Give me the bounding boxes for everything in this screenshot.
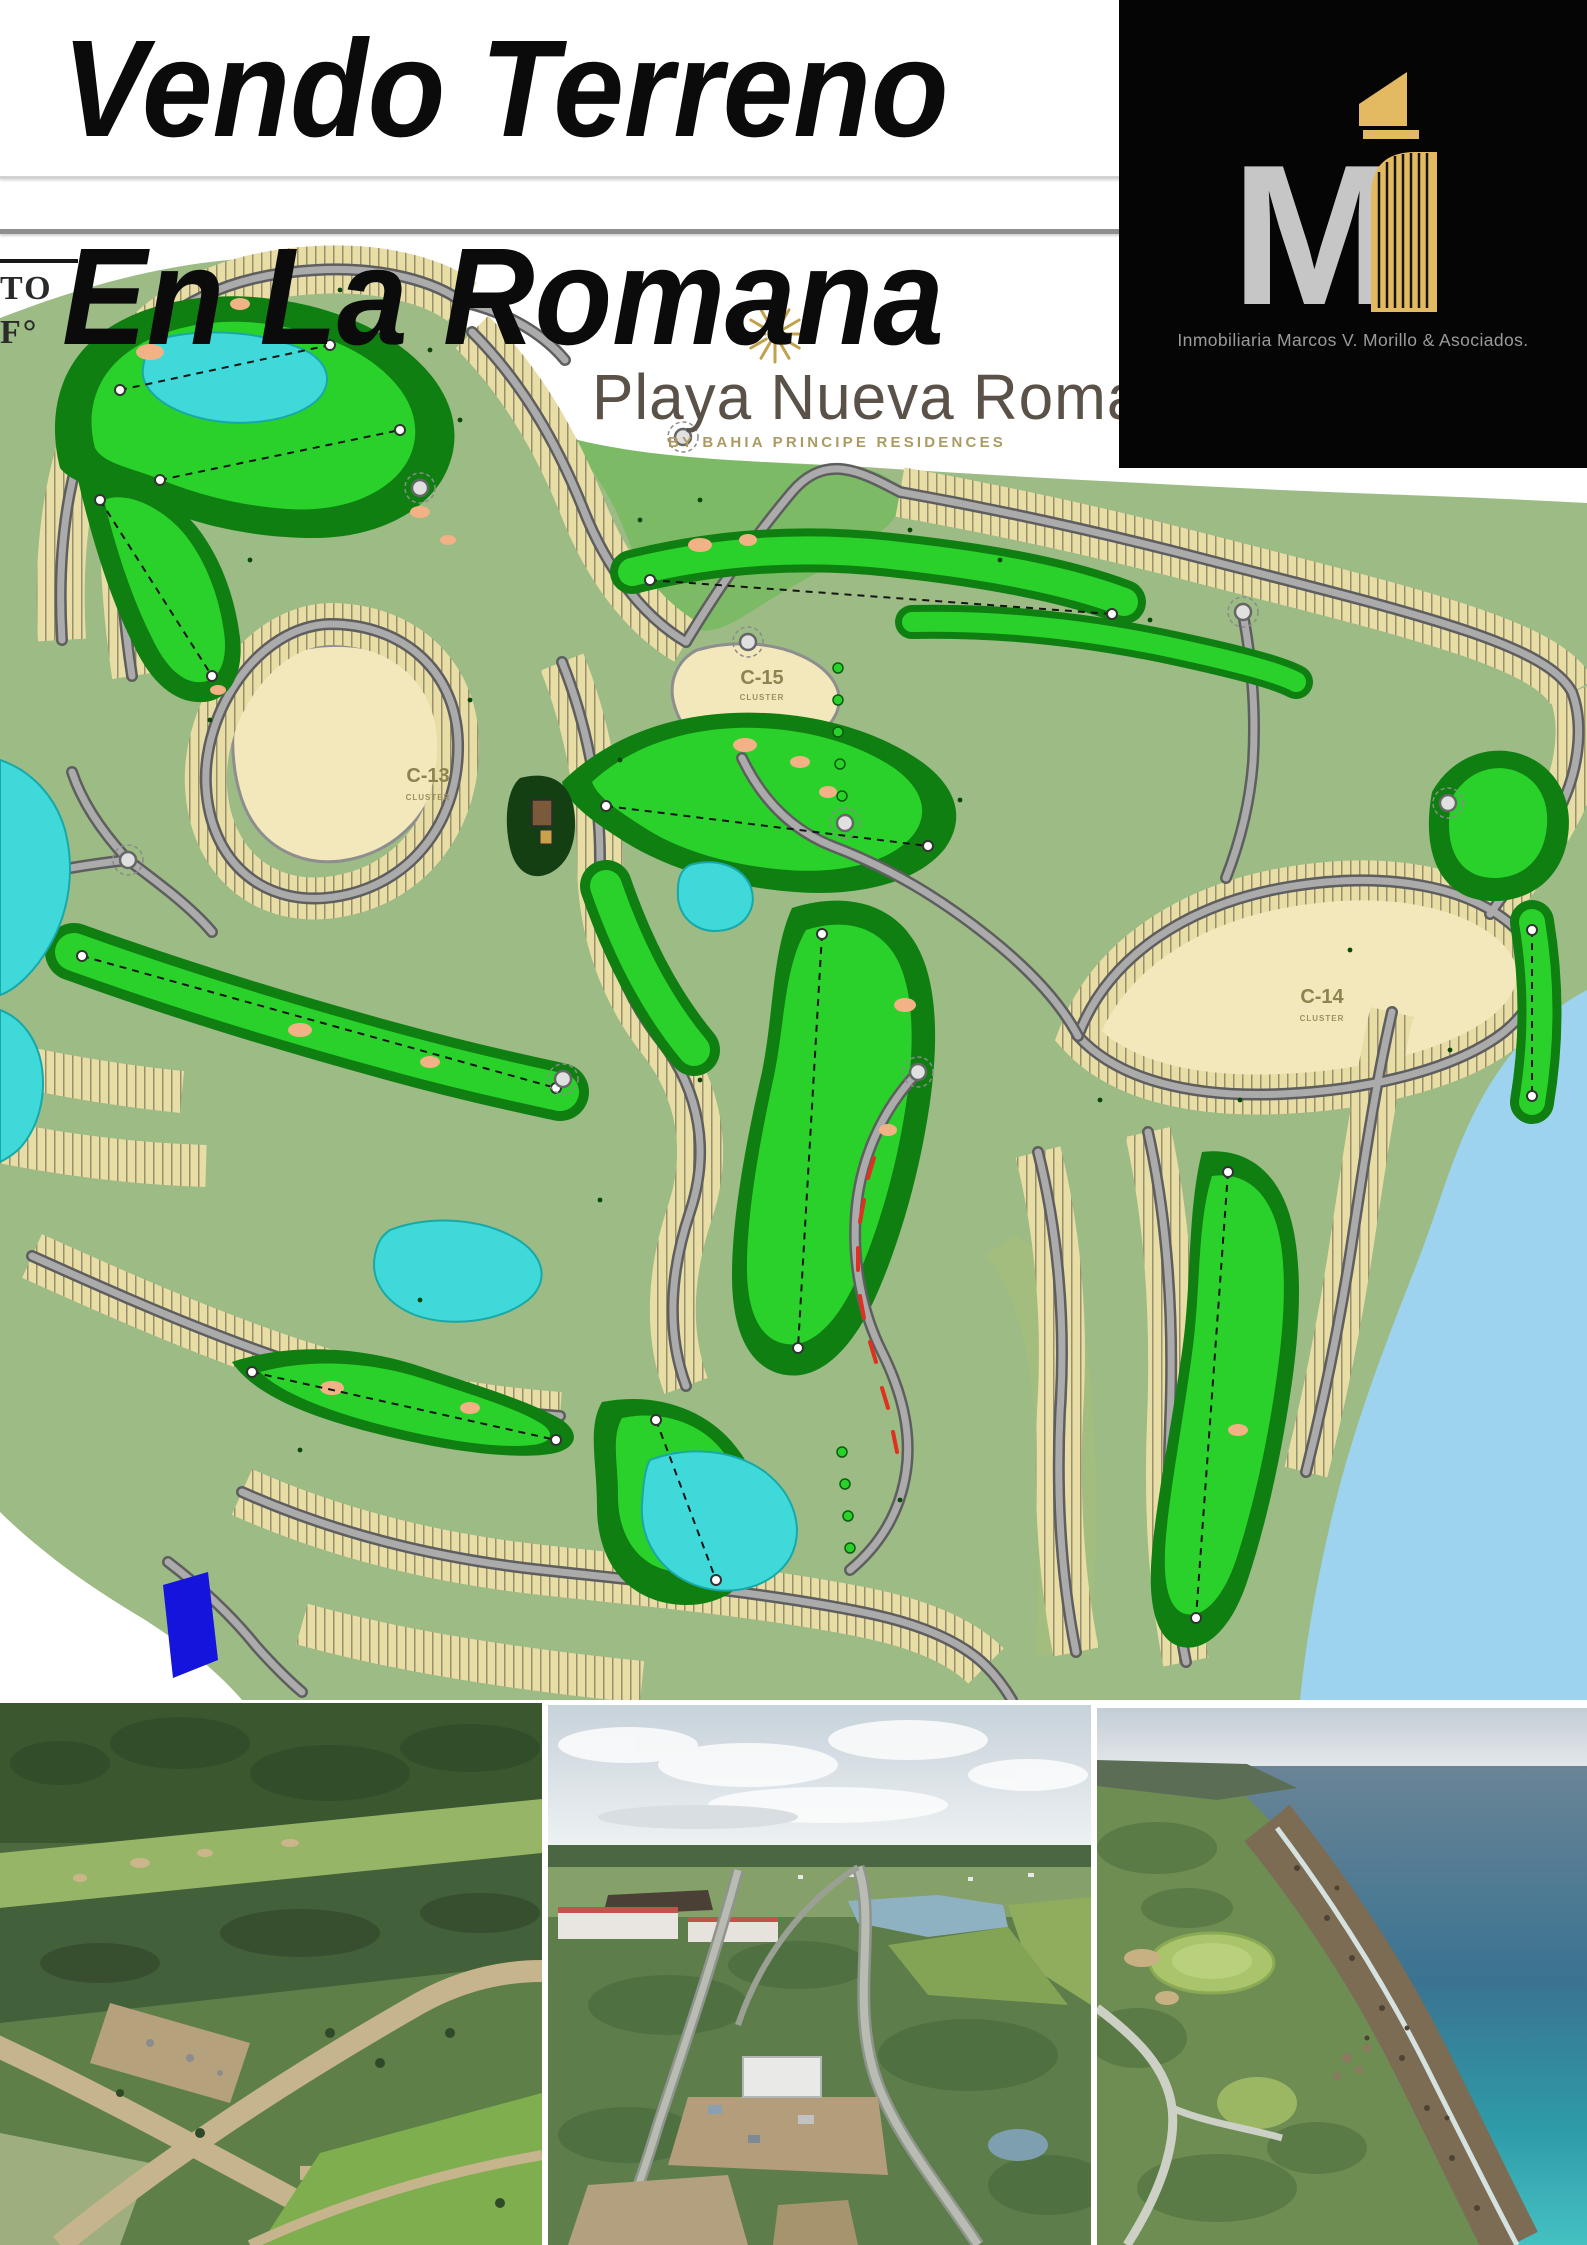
cluster-label-c15: C-15 (740, 667, 783, 689)
cropped-text-fragment-2: F° (0, 316, 38, 350)
flyer-poster: C-13 CLUSTER C-15 CLUSTER C-14 CLUSTER V… (0, 0, 1587, 2245)
headline-line2: En La Romana (62, 222, 944, 374)
divider-line-top (0, 176, 1120, 179)
svg-text:CLUSTER: CLUSTER (406, 793, 451, 802)
agency-logo-box: M (1119, 0, 1587, 468)
building-monogram-icon: M (1119, 0, 1587, 468)
headline-line1: Vendo Terreno (62, 14, 948, 166)
cluster-label-c13: C-13 (406, 765, 449, 787)
photo-cliff-coast-golf-hole (1097, 1708, 1587, 2245)
cropped-text-fragment-1: TO (0, 272, 53, 306)
photo-aerial-golf-fairways (0, 1703, 542, 2245)
agency-name: Inmobiliaria Marcos V. Morillo & Asociad… (1119, 330, 1587, 351)
photo-aerial-development-road (548, 1705, 1091, 2245)
divider-fragment (0, 259, 78, 263)
svg-text:CLUSTER: CLUSTER (740, 693, 785, 702)
cluster-label-c14: C-14 (1300, 986, 1344, 1008)
svg-text:CLUSTER: CLUSTER (1300, 1014, 1345, 1023)
resort-tagline: BY BAHIA PRINCIPE RESIDENCES (668, 434, 1006, 451)
